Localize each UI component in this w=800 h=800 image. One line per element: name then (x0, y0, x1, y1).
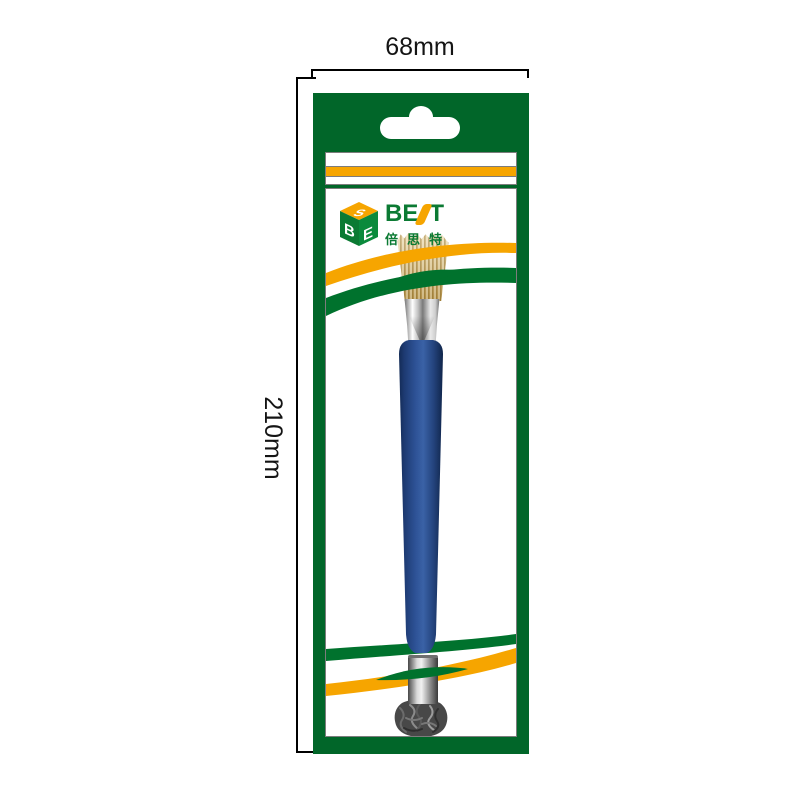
width-dimension-bracket (311, 69, 529, 78)
swoosh-ribbons-front (326, 189, 516, 736)
header-strip (325, 152, 517, 185)
packaging-card: S B E BE T 倍思特 (313, 93, 529, 754)
bottom-green-accent-swoosh (376, 667, 468, 680)
product-packaging-diagram: 68mm 210mm S B E (0, 0, 800, 800)
display-window: S B E BE T 倍思特 (325, 188, 517, 737)
height-dimension-label: 210mm (257, 396, 287, 480)
euro-hang-slot-body (380, 117, 460, 139)
width-dimension-label: 68mm (311, 33, 529, 62)
accent-stripe (326, 166, 516, 177)
